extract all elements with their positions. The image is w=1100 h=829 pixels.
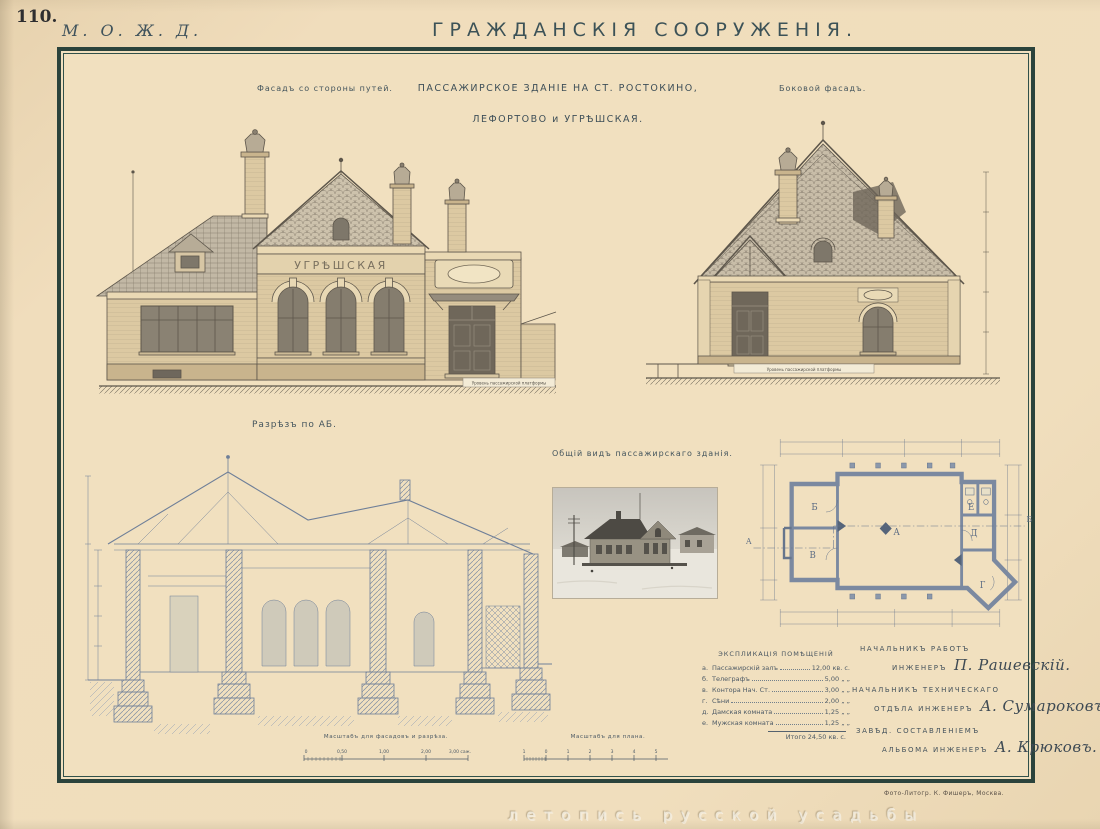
row-index: а. [702,663,712,674]
door-canopy [429,294,519,301]
signature-line: ОТДѢЛА ИНЖЕНЕРЪ А. Сумароковъ [874,697,1037,715]
lithographer-imprint: Фото-Литогр. К. Фишеръ, Москва. [884,790,1004,797]
row-value: 1,25 „ „ [825,707,850,718]
room-label-entry: Г [980,581,986,591]
row-index: в. [702,685,712,696]
side-elevation-drawing: Уровень пассажирской платформы [638,112,1008,397]
signature-name: А. Сумароковъ [980,697,1100,715]
caption-side-elevation: Боковой фасадъ. [779,84,866,93]
row-name: Пассажирскій залъ [712,663,778,674]
dimension-line [760,439,1022,627]
signature-name: А. Крюковъ. [995,738,1097,756]
explication-row: в. Контора Нач. Ст. 3,00 „ „ [702,685,850,696]
row-name: Дамская комната [712,707,772,718]
entrance-door [449,306,495,376]
front-elevation-art: УГРѢШСКАЯ [97,130,556,394]
row-value: 3,00 „ „ [825,685,850,696]
leader-dots [774,713,822,714]
platform-note-strip: Уровень пассажирской платформы [734,364,874,373]
scale-tick: 1 [523,749,526,755]
explication-table: ЭКСПЛИКАЦІЯ ПОМѢЩЕНІЙ а. Пассажирскій за… [702,649,850,743]
explication-row: д. Дамская комната 1,25 „ „ [702,707,850,718]
leader-dots [776,724,823,725]
scale-label-facades: Масштабъ для фасадовъ и разрѣза. [306,734,466,740]
explication-row: б. Телеграфъ 5,00 „ „ [702,674,850,685]
room-label-telegraph: Б [811,503,817,513]
row-value: 5,00 „ „ [825,674,850,685]
section-art [85,456,552,735]
leader-dots [780,669,810,670]
scale-label-plan: Масштабъ для плана. [548,734,668,740]
leader-dots [772,691,823,692]
row-value: 1,25 „ „ [825,718,850,729]
section-marker-a: А [746,537,752,546]
section-drawing [78,436,553,758]
left-wing-wall [107,292,267,380]
row-name: Контора Нач. Ст. [712,685,770,696]
caption-photo: Общій видъ пассажирскаго зданія. [552,449,732,458]
scale-tick: 1,00 [379,749,389,755]
chimney-icon [775,148,801,224]
signature-role: НАЧАЛЬНИКЪ РАБОТЪ [860,645,1037,653]
explication-row: е. Мужская комната 1,25 „ „ [702,718,850,729]
roof-truss [138,472,508,544]
explication-title: ЭКСПЛИКАЦІЯ ПОМѢЩЕНІЙ [702,649,850,660]
room-label-hall: А [893,528,900,538]
chimney-icon [445,179,469,252]
leader-dots [731,702,822,703]
scale-tick: 4 [633,749,636,755]
platform-note: Уровень пассажирской платформы [767,367,842,372]
left-wing-roof [97,216,267,296]
station-photograph [552,487,718,599]
scale-tick: 1 [567,749,570,755]
row-name: Сѣни [712,696,729,707]
section-marker-b: Б [1027,515,1033,524]
room-label-ladies: Д [971,529,978,539]
scale-tick: 2,00 [421,749,431,755]
lattice-gate [486,606,520,668]
explication-row: г. Сѣни 2,00 „ „ [702,696,850,707]
interior-elevation [148,568,520,672]
caption-front-elevation: Фасадъ со стороны путей. [257,84,393,93]
roof-outline [108,472,533,554]
row-value: 2,00 „ „ [825,696,850,707]
row-index: д. [702,707,712,718]
signature-role: АЛЬБОМА ИНЖЕНЕРЪ [882,746,988,754]
row-name: Телеграфъ [712,674,750,685]
platform-columns [850,463,955,599]
row-index: е. [702,718,712,729]
explication-row: а. Пассажирскій залъ 12,00 кв. с. [702,663,850,674]
chimney-icon [390,163,414,244]
platform-note: Уровень пассажирской платформы [472,381,547,386]
floor-plan-art: А Б А Б В Г Д Е [746,439,1033,627]
scale-tick: 3 [611,749,614,755]
side-wall [698,276,960,366]
signature-role: ОТДѢЛА ИНЖЕНЕРЪ [874,705,973,713]
room-label-gents: Е [968,503,974,513]
arched-window [858,288,898,355]
signature-name: П. Рашевскій. [954,656,1071,674]
side-elevation-art: Уровень пассажирской платформы [646,121,1000,384]
dimension-line [85,476,102,680]
section-chimney [400,480,410,500]
right-wing [521,312,556,380]
explication-total: Итого 24,50 кв. с. [702,732,850,743]
leader-dots [752,680,823,681]
signature-line: ИНЖЕНЕРЪ П. Рашевскій. [892,656,1037,674]
signature-line: АЛЬБОМА ИНЖЕНЕРЪ А. Крюковъ. [882,738,1037,756]
scale-tick: 5 [655,749,658,755]
room-label-office: В [810,551,816,561]
scale-tick: 3,00 саж. [449,749,471,755]
scale-bar-facades: 0 0,50 1,00 2,00 3,00 саж. [300,747,472,765]
platform-note-strip: Уровень пассажирской платформы [463,378,555,387]
entrance-bay [425,252,521,380]
plate-number: 110. [16,7,57,27]
scale-tick: 0 [305,749,308,755]
row-index: г. [702,696,712,707]
caption-building-line1: ПАССАЖИРСКОЕ ЗДАНІЕ НА СТ. РОСТОКИНО, [408,83,708,94]
row-name: Мужская комната [712,718,774,729]
arched-window [368,278,410,355]
signature-role: НАЧАЛЬНИКЪ ТЕХНИЧЕСКАГО [852,686,1037,694]
scale-tick: 0,50 [337,749,347,755]
signature-block: НАЧАЛЬНИКЪ РАБОТЪ ИНЖЕНЕРЪ П. Рашевскій.… [852,645,1037,756]
scale-tick: 2 [589,749,592,755]
railway-series-abbr: М. О. Ж. Д. [62,21,202,40]
dimension-line [983,172,989,374]
arched-window [272,278,314,355]
central-hall-wall [257,274,425,380]
row-index: б. [702,674,712,685]
station-sign: УГРѢШСКАЯ [294,259,387,272]
chimney-icon [241,130,269,218]
collection-watermark: летопись русской усадьбы [508,806,924,824]
plate-title: ГРАЖДАНСКІЯ СООРУЖЕНІЯ. [395,19,895,41]
front-elevation-drawing: УГРѢШСКАЯ [95,128,560,413]
scale-tick: 0 [545,749,548,755]
caption-section: Разрѣзъ по АБ. [252,420,337,430]
signature-role: ЗАВѢД. СОСТАВЛЕНІЕМЪ [856,727,1037,735]
arched-window [320,278,362,355]
album-plate-page: 110. М. О. Ж. Д. ГРАЖДАНСКІЯ СООРУЖЕНІЯ.… [0,0,1100,829]
gable-arched-vent [811,238,835,262]
side-door [732,292,768,362]
scale-bar-plan: 1 0 1 2 3 4 5 [518,747,673,765]
row-value: 12,00 кв. с. [812,663,850,674]
floor-plan-drawing: А Б А Б В Г Д Е [742,430,1038,635]
signature-role: ИНЖЕНЕРЪ [892,664,947,672]
